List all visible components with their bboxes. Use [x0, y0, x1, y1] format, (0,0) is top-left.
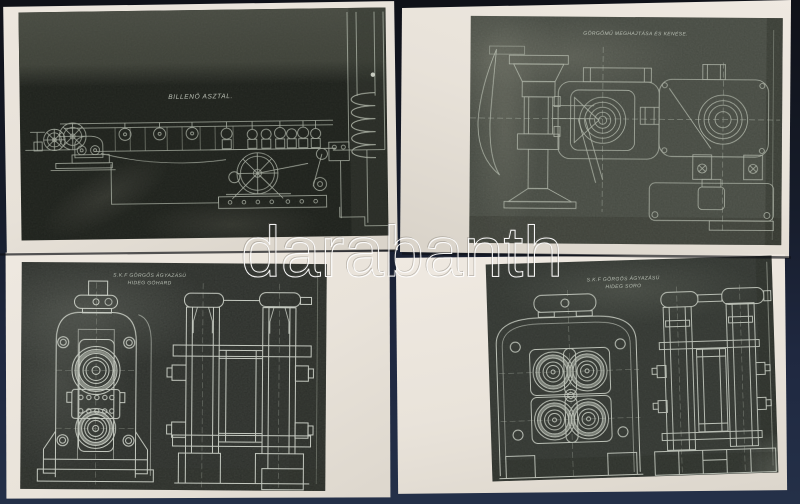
svg-text:darabanth: darabanth: [241, 213, 563, 293]
